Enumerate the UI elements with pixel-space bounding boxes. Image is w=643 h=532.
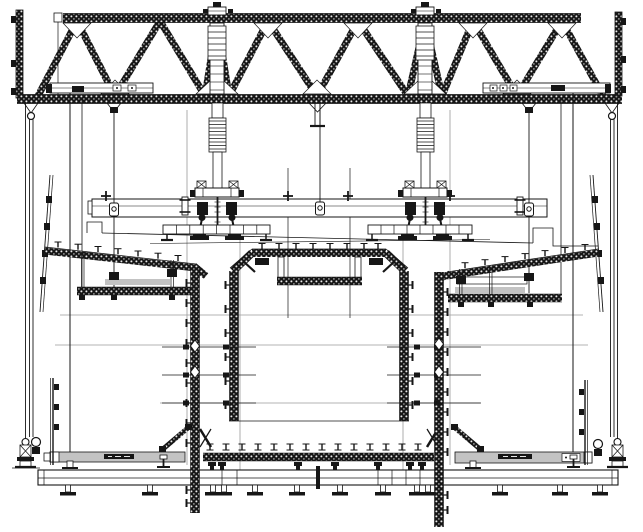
diagonal-prop-right [451,424,484,452]
hanger-rods-right [522,93,619,456]
formwork-cross-section-drawing [0,0,643,532]
truss-bottom-chord [17,95,622,104]
hanger-rods-left [24,93,121,454]
trolley-rail-right [483,83,611,93]
truss-top-chord [63,14,581,23]
side-rail-left [44,452,185,468]
rail-beam-left [161,225,272,240]
truss-hanging-post [309,103,326,126]
bottom-form [200,429,438,461]
support-tower-right [398,2,452,240]
construction-lines [55,103,588,470]
end-plate-right [615,12,626,96]
leaning-rail-right [590,175,604,312]
corner-jack-right [607,439,628,468]
technical-drawing-page [0,0,643,532]
web-form-right [435,272,448,527]
leaning-rail-left [40,175,53,312]
inner-core-form [226,244,413,422]
spreader-crossbeam [88,103,547,217]
rail-beam-right [366,225,474,240]
form-ties [162,338,481,406]
support-tower-left [190,2,244,240]
ground-sill [12,462,618,496]
side-rail-right [455,452,592,468]
trolley-rail-left [46,83,153,93]
wing-form-left [45,242,206,276]
